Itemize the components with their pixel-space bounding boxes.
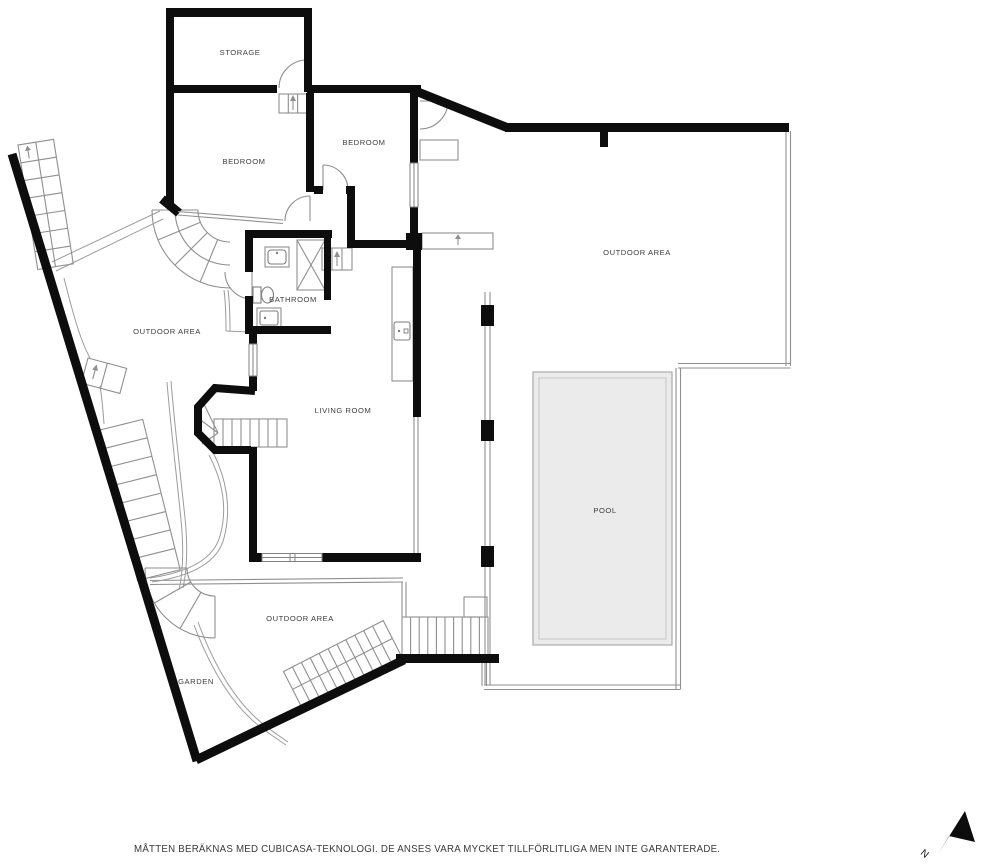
outdoor-bench-right [420,140,458,160]
room-label-garden: GARDEN [178,677,214,686]
floor-plan-svg: N STORAGE BEDROOM BEDROOM BATHROOM LIVIN… [0,0,984,864]
shower-closet [297,240,325,290]
room-label-bathroom: BATHROOM [269,295,317,304]
bathroom-basin [257,308,281,328]
staircase-storage [279,94,307,113]
disclaimer-text: MÅTTEN BERÄKNAS MED CUBICASA-TEKNOLOGI. … [134,844,854,855]
glass-line-living [414,417,418,553]
room-label-outdoor-bottom: OUTDOOR AREA [266,614,334,623]
door-swing-hall [285,196,310,221]
outdoor-step-left [81,358,126,393]
door-swing-storage [279,60,307,88]
staircase-bottom [402,597,488,656]
staircase-bay [198,398,287,447]
room-label-bedroom-left: BEDROOM [222,157,265,166]
room-label-outdoor-right: OUTDOOR AREA [603,248,671,257]
staircase-mid-left [100,419,180,580]
room-label-storage: STORAGE [220,48,261,57]
fan-staircase-upper [152,210,230,288]
door-swing-bedroom-right [323,165,348,190]
room-label-outdoor-left: OUTDOOR AREA [133,327,201,336]
floor-plan-page: N STORAGE BEDROOM BEDROOM BATHROOM LIVIN… [0,0,984,864]
outdoor-step-right [422,233,493,249]
room-label-pool: POOL [593,506,616,515]
north-arrow-icon: N [918,811,975,861]
north-label: N [918,848,931,861]
kitchen-counter [392,267,413,381]
bathroom-sink [265,247,289,267]
partition-line [178,212,283,224]
room-label-living-room: LIVING ROOM [315,406,372,415]
room-label-bedroom-right: BEDROOM [342,138,385,147]
outdoor-boundary-lines [150,131,791,690]
